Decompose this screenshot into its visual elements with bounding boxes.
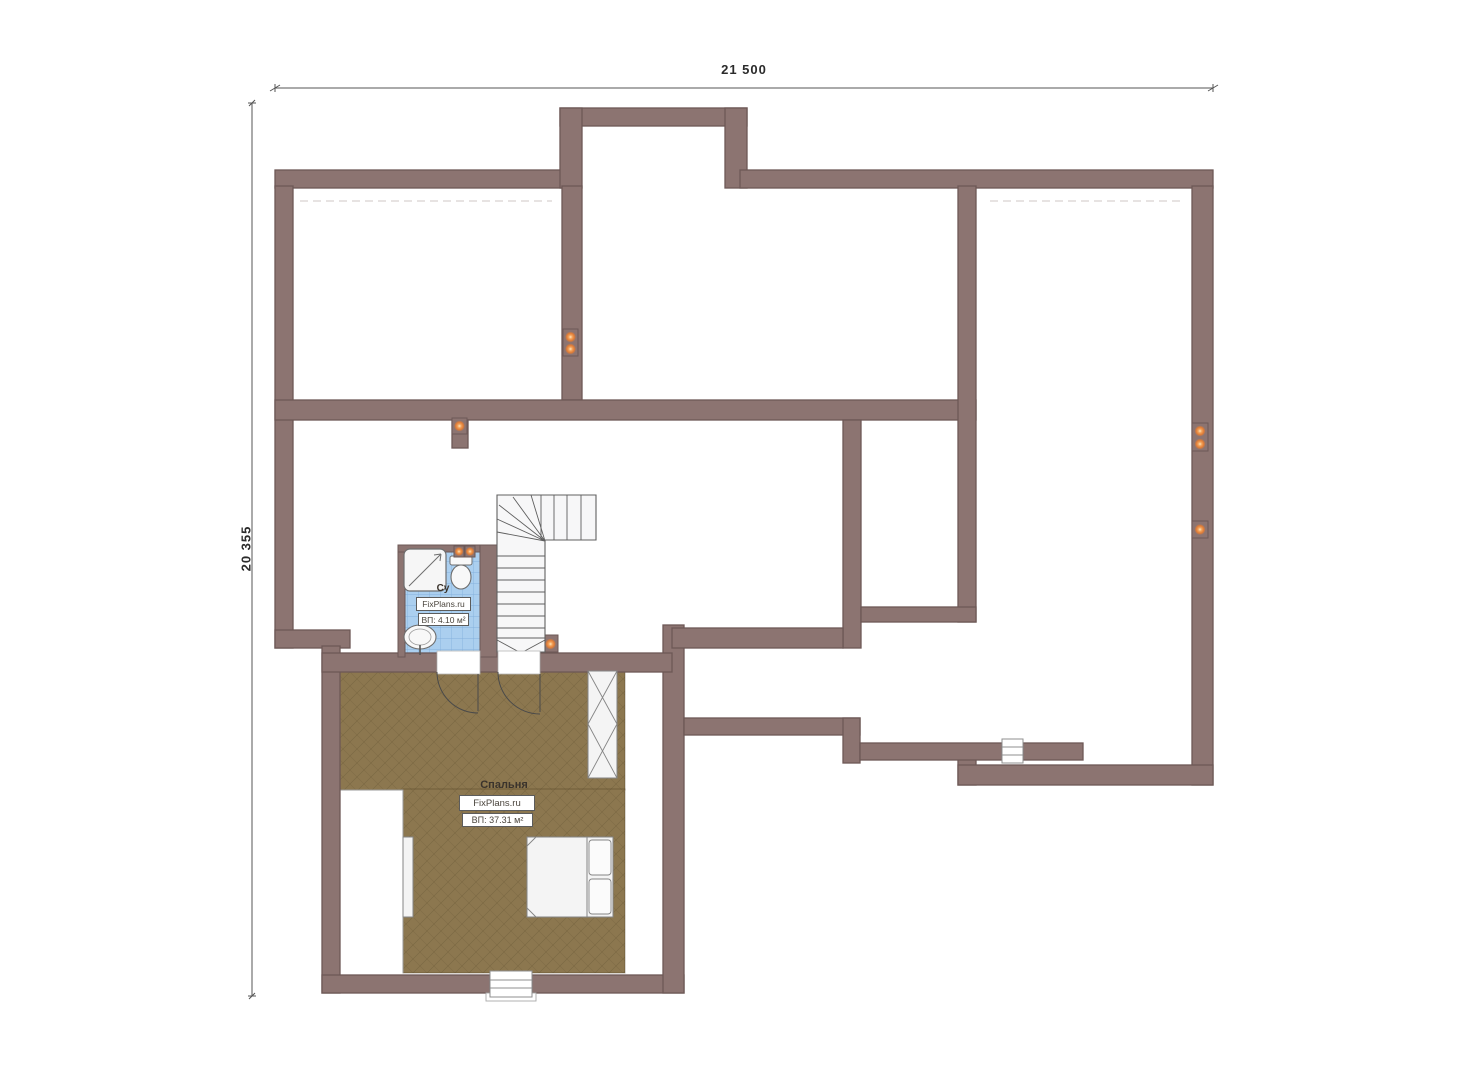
socket-single-icon <box>545 639 556 650</box>
wall-corridor-bottom-a <box>684 718 860 735</box>
wall-bathroom-right <box>480 545 497 657</box>
socket-pair-icon <box>454 546 475 557</box>
socket-single-icon <box>452 418 467 434</box>
pillow <box>589 879 611 914</box>
wall-right-room-upper <box>958 186 976 622</box>
dimension-height-label: 20 355 <box>239 499 254 599</box>
wall-left-corner <box>275 630 350 648</box>
bedroom-niche-edge <box>340 790 403 973</box>
wall-divider-top-rooms <box>562 186 582 400</box>
wall-corridor-top <box>672 628 843 648</box>
floor-plan-canvas: .w { fill:#8C7471; stroke:#6D5856; strok… <box>0 0 1474 1080</box>
corridor-window <box>1002 739 1023 763</box>
socket-single-icon <box>1192 521 1208 538</box>
bedroom-name: Спальня <box>454 779 554 791</box>
wall-right-room-bottom <box>958 765 1213 785</box>
pillow <box>589 840 611 875</box>
wall-center-vertical <box>843 420 861 648</box>
bedroom-watermark: FixPlans.ru <box>459 795 535 811</box>
wall-corridor-jog <box>843 718 860 763</box>
floor-plan-drawing: .w { fill:#8C7471; stroke:#6D5856; strok… <box>0 0 1474 1080</box>
stairs <box>497 495 596 653</box>
wall-corridor-bottom-b <box>860 743 1002 760</box>
bed <box>527 837 613 917</box>
dimension-width-label: 21 500 <box>694 62 794 77</box>
wall-corridor-bottom-c <box>1023 743 1083 760</box>
bathroom-door-threshold <box>437 651 480 674</box>
wall-top-left <box>275 170 562 188</box>
wall-bump-left <box>560 108 582 188</box>
stairs-door-threshold <box>498 651 540 674</box>
wall-bedroom-top-c <box>540 653 672 672</box>
wall-middle <box>275 400 976 420</box>
socket-double-icon <box>563 329 578 356</box>
bathroom-area-label: ВП: 4.10 м² <box>418 613 469 626</box>
wall-bedroom-top-a <box>322 653 437 672</box>
wall-bedroom-bottom-a <box>322 975 490 993</box>
bedroom-window <box>486 971 536 1001</box>
wall-bump-top <box>560 108 747 126</box>
wall-center-horizontal <box>861 607 976 622</box>
wall-bedroom-right <box>663 625 684 993</box>
dresser <box>403 837 413 917</box>
bathroom-watermark: FixPlans.ru <box>416 597 471 611</box>
bedroom-area-label: ВП: 37.31 м² <box>462 813 533 827</box>
wall-right-outer <box>1192 186 1213 785</box>
wall-bedroom-bottom-b <box>532 975 684 993</box>
dimension-lines <box>248 84 1218 999</box>
socket-double-icon <box>1192 423 1208 451</box>
wall-bedroom-left <box>322 646 340 993</box>
wardrobe <box>588 671 617 778</box>
bathroom-name: Су <box>425 583 461 594</box>
wall-top-right <box>740 170 1213 188</box>
